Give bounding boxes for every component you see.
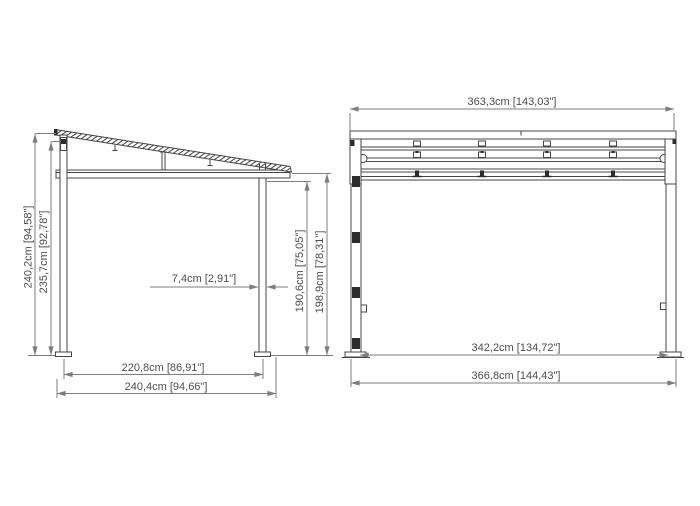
side-beam bbox=[56, 170, 290, 178]
dim-label: 7,4cm [2,91"] bbox=[172, 273, 236, 285]
dim-label: 342,2cm [134,72"] bbox=[472, 342, 561, 354]
dim-label: 240,2cm [94,58"] bbox=[23, 206, 35, 289]
dim-label: 235,7cm [92,78"] bbox=[38, 211, 50, 294]
post-hook bbox=[661, 303, 667, 310]
dim-post-spacing-width: 342,2cm [134,72"] bbox=[360, 342, 668, 355]
roof-back-cap bbox=[54, 129, 58, 136]
dim-overall-width: 366,8cm [144,43"] bbox=[351, 359, 676, 387]
dim-roof-width: 363,3cm [143,03"] bbox=[350, 96, 674, 130]
dim-label: 363,3cm [143,03"] bbox=[468, 96, 557, 108]
dim-label: 240,4cm [94,66"] bbox=[125, 381, 208, 393]
roof-clip bbox=[208, 160, 213, 166]
side-front-post bbox=[259, 178, 266, 352]
side-back-post bbox=[60, 135, 67, 352]
roof-clip bbox=[113, 145, 118, 151]
post-connector bbox=[352, 287, 360, 298]
dim-post-width: 7,4cm [2,91"] bbox=[150, 273, 288, 287]
post-hook bbox=[361, 305, 367, 312]
base-plate bbox=[56, 352, 72, 357]
technical-drawing: 240,2cm [94,58"] 235,7cm [92,78"] 190,6c… bbox=[0, 0, 700, 506]
side-view-structure bbox=[28, 129, 333, 357]
front-right-cap bbox=[665, 139, 676, 184]
drawing-svg: 240,2cm [94,58"] 235,7cm [92,78"] 190,6c… bbox=[0, 0, 700, 506]
front-view-structure bbox=[342, 131, 684, 358]
dim-label: 366,8cm [144,43"] bbox=[472, 370, 561, 382]
purlin-row bbox=[356, 147, 670, 150]
clip-row-middle bbox=[414, 151, 617, 158]
purlin-row bbox=[356, 169, 670, 172]
dim-label: 220,8cm [86,91"] bbox=[122, 362, 205, 374]
post-connector bbox=[352, 338, 360, 349]
front-view: 363,3cm [143,03"] 342,2cm [134,72"] 366,… bbox=[342, 96, 684, 387]
base-plate bbox=[255, 352, 271, 357]
dim-clear-height-front: 190,6cm [75,05"] bbox=[267, 182, 311, 356]
front-fascia bbox=[350, 131, 676, 139]
purlin-row bbox=[356, 158, 670, 162]
mid-strut bbox=[162, 152, 165, 170]
side-view: 240,2cm [94,58"] 235,7cm [92,78"] 190,6c… bbox=[23, 129, 334, 398]
side-roof-panel bbox=[55, 130, 292, 173]
front-left-post bbox=[351, 184, 361, 352]
dim-label: 198,9cm [78,31"] bbox=[314, 231, 326, 314]
purlin-row bbox=[356, 177, 670, 181]
clip-row-upper bbox=[414, 141, 617, 146]
post-connector bbox=[352, 176, 360, 187]
dim-post-spacing-depth: 220,8cm [86,91"] bbox=[64, 359, 263, 379]
post-connector bbox=[352, 232, 360, 243]
front-right-post bbox=[666, 184, 676, 352]
dim-label: 190,6cm [75,05"] bbox=[294, 230, 306, 313]
